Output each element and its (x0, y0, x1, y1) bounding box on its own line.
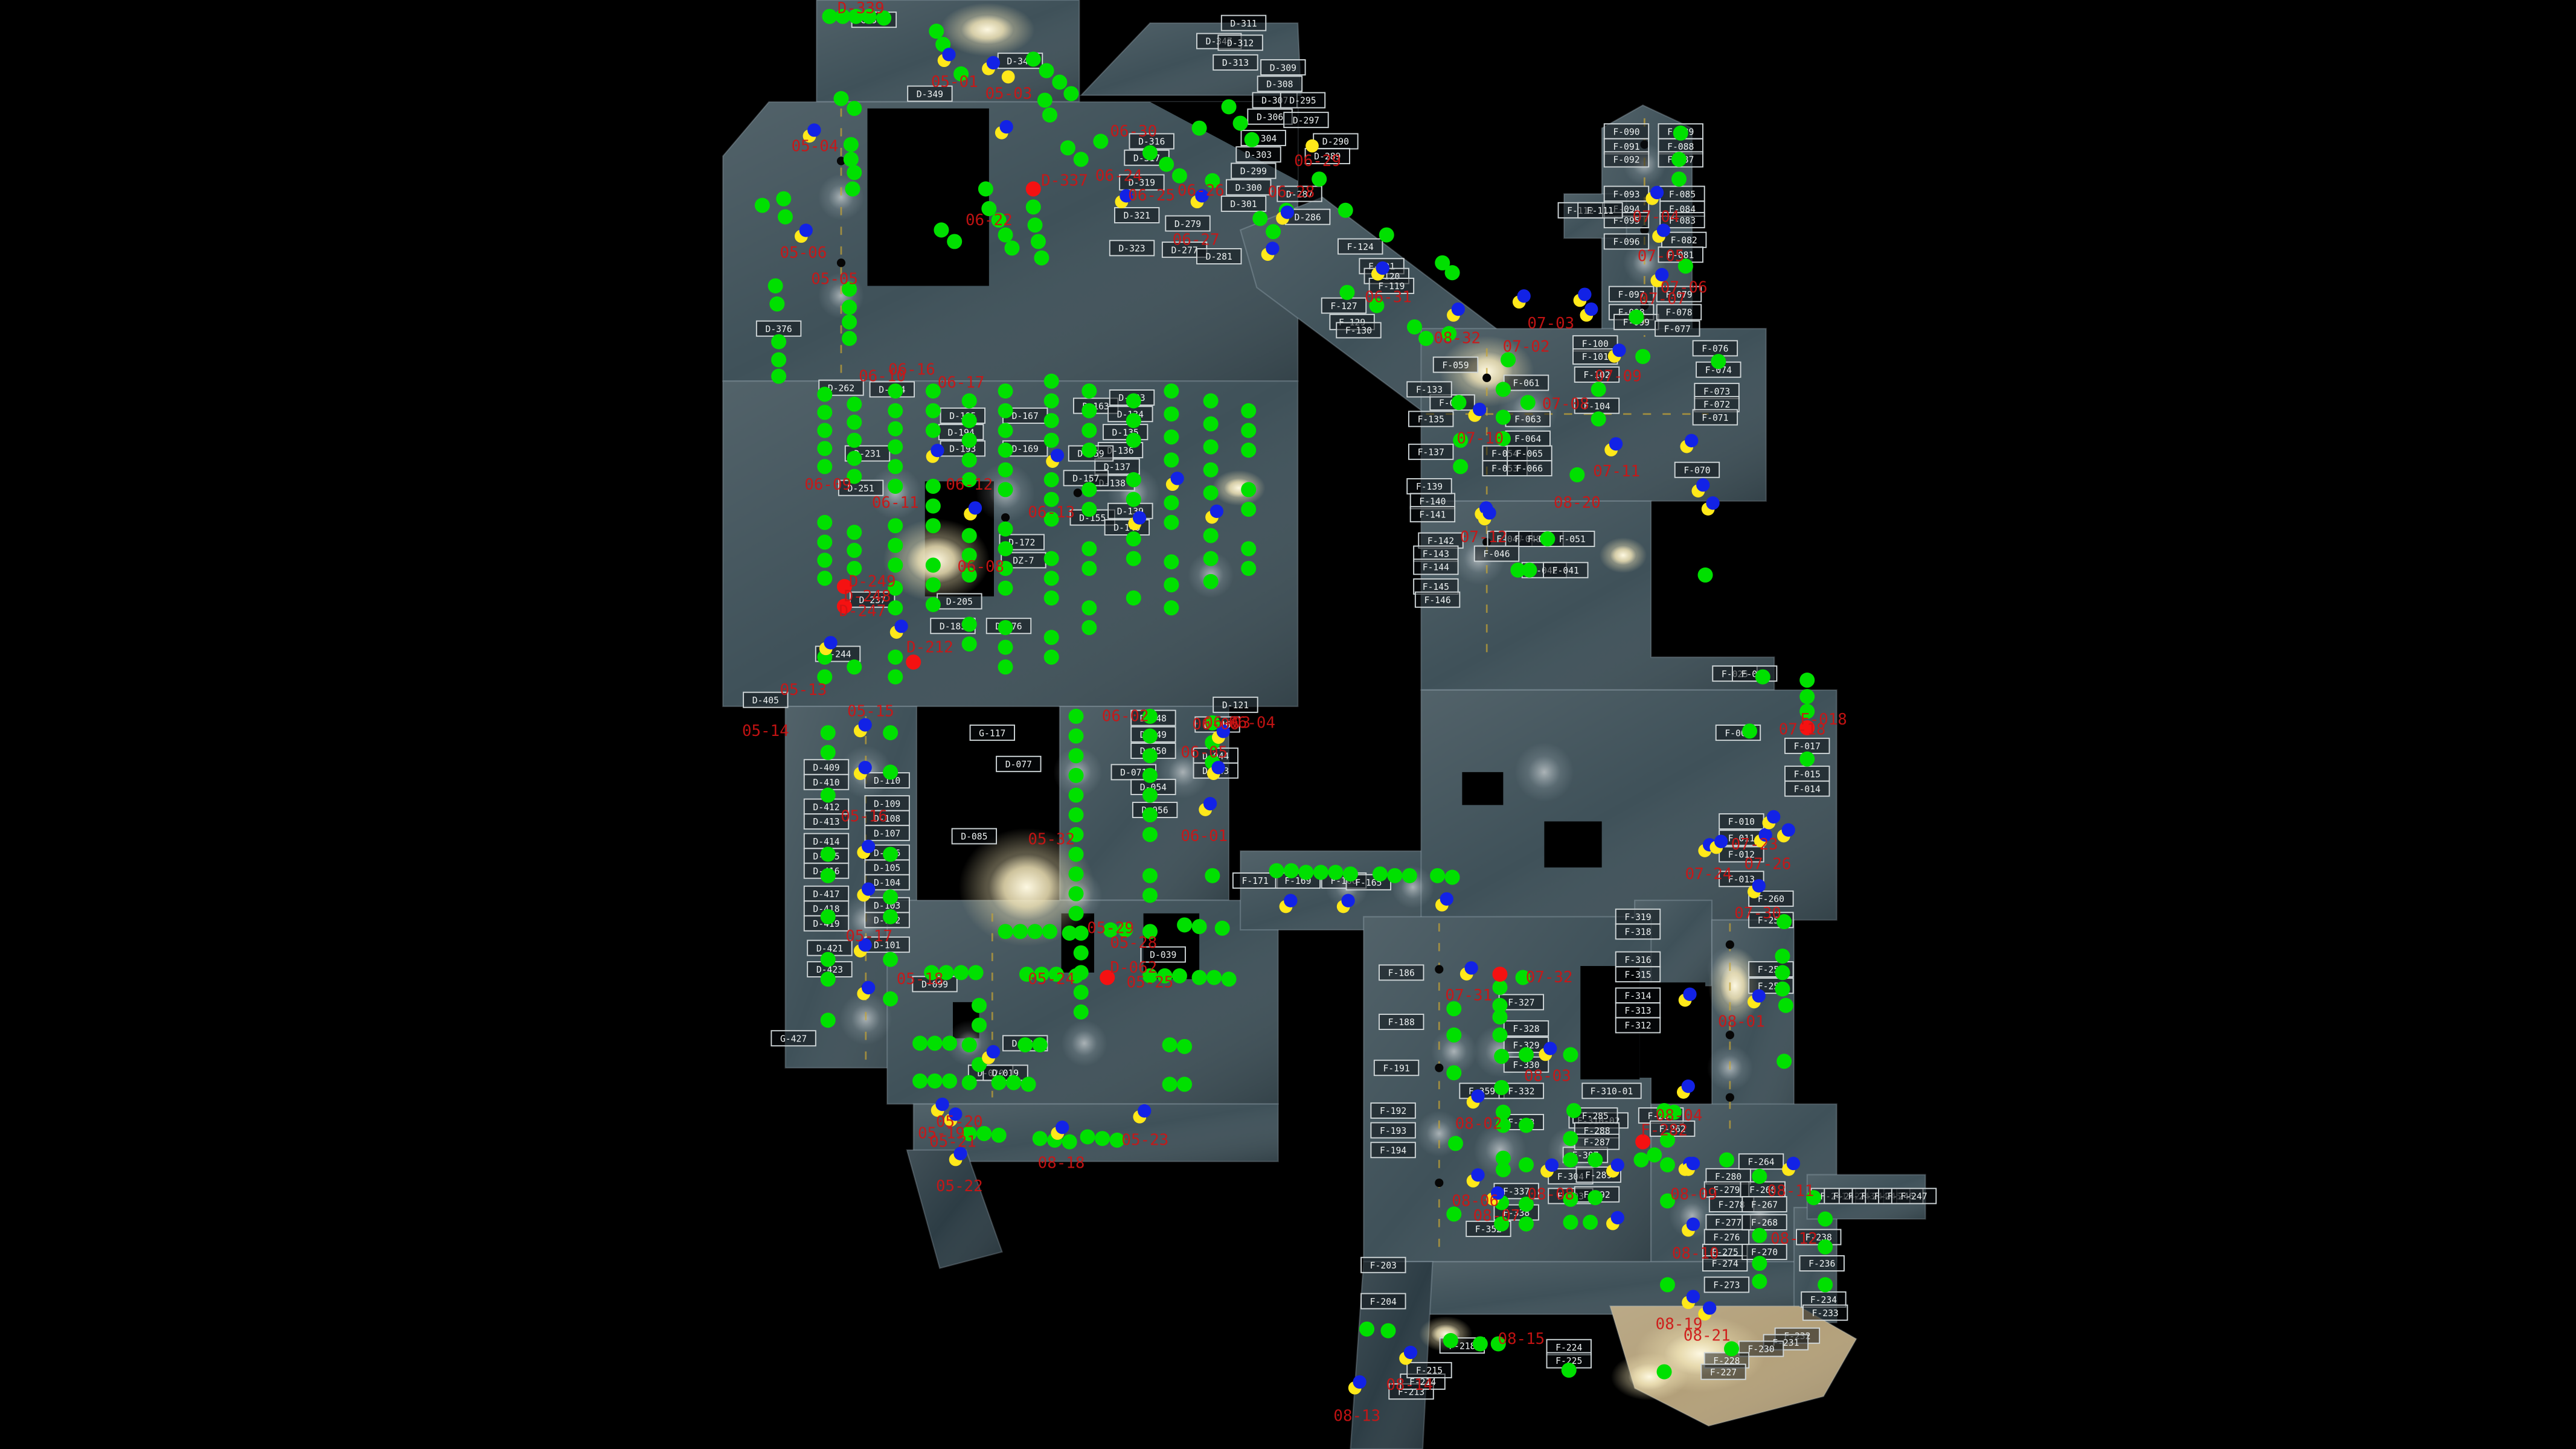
status-dot-green[interactable] (962, 636, 977, 651)
status-dot-green[interactable] (1799, 752, 1815, 767)
status-dot-green[interactable] (1081, 620, 1097, 635)
status-dot-green[interactable] (1818, 1239, 1833, 1255)
status-dot-green[interactable] (822, 9, 837, 24)
status-dot-green[interactable] (1192, 919, 1207, 934)
status-dot-green[interactable] (1203, 417, 1219, 432)
status-dot-green[interactable] (1004, 240, 1019, 255)
status-dot-green[interactable] (888, 518, 903, 533)
status-dot-green[interactable] (821, 909, 836, 924)
status-dot-green[interactable] (1093, 133, 1108, 149)
status-dot-green[interactable] (1164, 383, 1179, 398)
status-dot-green[interactable] (1044, 551, 1059, 566)
status-dot-green[interactable] (1711, 354, 1726, 369)
status-dot-green[interactable] (844, 152, 859, 167)
status-dot-green[interactable] (1446, 1028, 1461, 1043)
status-dot-blue[interactable] (1513, 289, 1531, 309)
status-dot-green[interactable] (1252, 211, 1267, 226)
status-dot-green[interactable] (1044, 650, 1059, 665)
status-dot-green[interactable] (771, 369, 786, 384)
status-dot-green[interactable] (1453, 459, 1468, 474)
status-dot-green[interactable] (1671, 152, 1687, 167)
status-dot-green[interactable] (1069, 846, 1084, 862)
status-dot-green[interactable] (1343, 866, 1358, 881)
status-dot-green[interactable] (929, 24, 944, 39)
status-dot-green[interactable] (1430, 868, 1445, 883)
status-dot-green[interactable] (1021, 1076, 1036, 1092)
status-dot-green[interactable] (1177, 917, 1192, 932)
status-dot-green[interactable] (842, 331, 857, 346)
status-dot-red[interactable] (1026, 181, 1041, 196)
status-dot-green[interactable] (992, 1075, 1007, 1090)
status-dot-green[interactable] (962, 413, 977, 428)
status-dot-green[interactable] (817, 552, 832, 568)
status-dot-green[interactable] (1142, 888, 1158, 903)
status-dot-green[interactable] (1245, 132, 1260, 147)
status-dot-green[interactable] (1164, 554, 1179, 569)
status-dot-green[interactable] (1818, 1212, 1833, 1227)
status-dot-green[interactable] (1473, 1336, 1488, 1351)
status-dot-green[interactable] (1126, 590, 1141, 606)
status-dot-green[interactable] (1742, 723, 1757, 738)
status-dot-green[interactable] (821, 868, 836, 883)
status-dot-green[interactable] (847, 525, 862, 540)
status-dot-green[interactable] (821, 745, 836, 760)
status-dot-green[interactable] (1818, 1277, 1833, 1292)
status-dot-green[interactable] (847, 415, 862, 430)
status-dot-green[interactable] (817, 515, 832, 530)
status-dot-green[interactable] (1588, 1153, 1603, 1168)
status-dot-green[interactable] (962, 1037, 977, 1052)
status-dot-green[interactable] (883, 846, 898, 862)
status-dot-green[interactable] (962, 1075, 977, 1090)
status-dot-green[interactable] (1162, 1076, 1177, 1092)
status-dot-green[interactable] (1044, 374, 1059, 389)
status-dot-green[interactable] (1241, 443, 1256, 458)
status-dot-green[interactable] (1069, 748, 1084, 763)
status-dot-green[interactable] (1755, 670, 1770, 685)
status-dot-green[interactable] (1074, 945, 1089, 961)
status-dot-yellow[interactable] (1306, 139, 1319, 153)
status-dot-green[interactable] (1569, 467, 1584, 482)
status-dot-green[interactable] (888, 403, 903, 418)
status-dot-green[interactable] (1069, 866, 1084, 881)
status-dot-green[interactable] (1081, 383, 1097, 398)
status-dot-green[interactable] (817, 459, 832, 474)
status-dot-green[interactable] (1591, 411, 1606, 426)
status-dot-green[interactable] (912, 1035, 928, 1051)
status-dot-green[interactable] (1492, 980, 1507, 995)
status-dot-green[interactable] (1164, 452, 1179, 467)
status-dot-green[interactable] (847, 165, 862, 180)
status-dot-green[interactable] (1496, 410, 1511, 425)
status-dot-green[interactable] (992, 1128, 1007, 1143)
status-dot-green[interactable] (1380, 1323, 1395, 1339)
status-dot-green[interactable] (1205, 868, 1220, 883)
status-dot-green[interactable] (1647, 1147, 1662, 1162)
status-dot-green[interactable] (1241, 403, 1256, 418)
status-dot-green[interactable] (776, 191, 791, 206)
status-dot-green[interactable] (1635, 349, 1650, 364)
status-dot-green[interactable] (1026, 51, 1041, 66)
status-dot-green[interactable] (768, 278, 783, 293)
status-dot-green[interactable] (1241, 423, 1256, 438)
status-dot-green[interactable] (1313, 865, 1328, 880)
status-dot-green[interactable] (998, 383, 1013, 398)
status-dot-green[interactable] (1081, 561, 1097, 576)
status-dot-green[interactable] (1494, 1080, 1509, 1095)
status-dot-green[interactable] (1063, 86, 1078, 101)
status-dot-green[interactable] (1540, 531, 1555, 546)
status-dot-green[interactable] (1660, 1157, 1675, 1172)
status-dot-green[interactable] (817, 423, 832, 438)
status-dot-green[interactable] (888, 479, 903, 494)
status-dot-green[interactable] (1402, 868, 1417, 883)
status-dot-green[interactable] (969, 965, 984, 980)
status-dot-green[interactable] (1407, 319, 1422, 334)
status-dot-green[interactable] (1060, 140, 1075, 155)
status-dot-green[interactable] (1164, 600, 1179, 615)
status-dot-green[interactable] (1142, 807, 1158, 822)
status-dot-green[interactable] (1028, 217, 1043, 232)
status-dot-green[interactable] (1494, 1049, 1509, 1064)
status-dot-green[interactable] (926, 597, 941, 612)
status-dot-green[interactable] (1520, 395, 1536, 410)
status-dot-green[interactable] (1522, 563, 1537, 578)
status-dot-green[interactable] (845, 181, 860, 196)
status-dot-green[interactable] (847, 397, 862, 412)
status-dot-green[interactable] (1081, 600, 1097, 615)
status-dot-green[interactable] (1269, 863, 1284, 878)
status-dot-green[interactable] (1203, 528, 1219, 543)
status-dot-green[interactable] (1177, 1039, 1192, 1054)
status-dot-green[interactable] (1142, 146, 1158, 161)
status-dot-green[interactable] (821, 971, 836, 987)
status-dot-green[interactable] (1177, 1076, 1192, 1092)
status-dot-green[interactable] (1443, 1333, 1458, 1348)
status-dot-green[interactable] (1069, 906, 1084, 921)
status-dot-green[interactable] (1142, 748, 1158, 763)
status-dot-green[interactable] (1162, 1037, 1177, 1052)
status-dot-green[interactable] (934, 222, 949, 237)
status-dot-green[interactable] (1752, 1256, 1767, 1271)
status-dot-green[interactable] (1069, 807, 1084, 822)
status-dot-green[interactable] (1126, 551, 1141, 566)
status-dot-green[interactable] (998, 659, 1013, 674)
status-dot-green[interactable] (1566, 1103, 1581, 1118)
status-dot-green[interactable] (1752, 1274, 1767, 1289)
status-dot-green[interactable] (953, 965, 969, 980)
status-dot-green[interactable] (1775, 982, 1790, 997)
status-dot-green[interactable] (998, 403, 1013, 418)
status-dot-green[interactable] (1660, 1277, 1675, 1292)
status-dot-green[interactable] (771, 334, 786, 349)
status-dot-green[interactable] (978, 181, 993, 196)
status-dot-green[interactable] (1164, 515, 1179, 530)
status-dot-green[interactable] (1037, 92, 1053, 107)
status-dot-green[interactable] (771, 352, 786, 367)
status-dot-green[interactable] (928, 1035, 943, 1051)
status-dot-green[interactable] (847, 659, 862, 674)
status-dot-green[interactable] (1192, 121, 1207, 136)
status-dot-green[interactable] (1777, 1054, 1792, 1069)
status-dot-green[interactable] (1069, 768, 1084, 783)
status-dot-green[interactable] (1203, 393, 1219, 408)
status-dot-green[interactable] (1241, 482, 1256, 497)
status-dot-green[interactable] (1673, 126, 1688, 141)
status-dot-green[interactable] (1448, 1136, 1463, 1151)
status-dot-green[interactable] (755, 198, 770, 213)
status-dot-green[interactable] (1080, 1129, 1095, 1144)
status-dot-green[interactable] (1633, 1153, 1648, 1168)
status-dot-green[interactable] (1044, 472, 1059, 487)
status-dot-green[interactable] (1222, 971, 1237, 987)
status-dot-green[interactable] (1081, 403, 1097, 418)
status-dot-green[interactable] (1359, 1322, 1374, 1337)
status-dot-green[interactable] (1126, 472, 1141, 487)
status-dot-green[interactable] (947, 234, 962, 249)
status-dot-green[interactable] (817, 441, 832, 456)
status-dot-green[interactable] (1215, 921, 1230, 936)
status-dot-green[interactable] (1142, 768, 1158, 783)
status-dot-green[interactable] (1033, 1131, 1048, 1146)
status-dot-green[interactable] (1519, 1217, 1534, 1232)
status-dot-green[interactable] (842, 299, 857, 315)
status-dot-green[interactable] (998, 522, 1013, 537)
status-dot-green[interactable] (1203, 440, 1219, 455)
status-dot-green[interactable] (888, 421, 903, 437)
status-dot-green[interactable] (1028, 924, 1043, 939)
status-dot-green[interactable] (888, 440, 903, 455)
status-dot-green[interactable] (1013, 924, 1028, 939)
status-dot-yellow[interactable] (1002, 70, 1015, 83)
status-dot-green[interactable] (1203, 462, 1219, 478)
status-dot-green[interactable] (821, 725, 836, 740)
status-dot-green[interactable] (1203, 551, 1219, 566)
status-dot-green[interactable] (1081, 541, 1097, 556)
status-dot-green[interactable] (1799, 689, 1815, 704)
status-dot-green[interactable] (1081, 502, 1097, 517)
status-dot-green[interactable] (962, 393, 977, 408)
status-dot-green[interactable] (998, 443, 1013, 458)
status-dot-green[interactable] (1069, 709, 1084, 724)
status-dot-green[interactable] (1033, 1037, 1048, 1052)
status-dot-green[interactable] (888, 670, 903, 685)
status-dot-green[interactable] (888, 383, 903, 398)
status-dot-green[interactable] (1629, 310, 1644, 325)
status-dot-green[interactable] (847, 451, 862, 466)
status-dot-green[interactable] (942, 1073, 957, 1089)
status-dot-green[interactable] (1588, 1190, 1603, 1205)
status-dot-green[interactable] (769, 296, 784, 312)
status-dot-green[interactable] (1284, 863, 1299, 878)
status-dot-green[interactable] (1206, 970, 1222, 985)
status-dot-green[interactable] (972, 998, 987, 1013)
status-dot-green[interactable] (1799, 673, 1815, 688)
status-dot-green[interactable] (926, 558, 941, 573)
status-dot-green[interactable] (1074, 985, 1089, 1000)
status-dot-green[interactable] (833, 91, 848, 106)
status-dot-green[interactable] (1081, 423, 1097, 438)
status-dot-green[interactable] (998, 581, 1013, 596)
status-dot-green[interactable] (1496, 1162, 1511, 1177)
status-dot-green[interactable] (817, 534, 832, 549)
status-dot-green[interactable] (1451, 395, 1466, 410)
status-dot-green[interactable] (888, 459, 903, 474)
status-dot-green[interactable] (1519, 1118, 1534, 1133)
status-dot-green[interactable] (842, 315, 857, 330)
status-dot-green[interactable] (847, 543, 862, 558)
status-dot-green[interactable] (926, 423, 941, 438)
status-dot-green[interactable] (821, 1012, 836, 1028)
status-dot-green[interactable] (821, 952, 836, 967)
status-dot-blue[interactable] (1677, 1080, 1695, 1099)
status-dot-green[interactable] (998, 482, 1013, 497)
status-dot-green[interactable] (1752, 1228, 1767, 1243)
status-dot-green[interactable] (926, 499, 941, 514)
status-dot-green[interactable] (1164, 429, 1179, 444)
status-dot-green[interactable] (847, 101, 862, 116)
status-dot-green[interactable] (1081, 482, 1097, 497)
status-dot-green[interactable] (962, 433, 977, 448)
status-dot-green[interactable] (883, 952, 898, 967)
status-dot-green[interactable] (1338, 203, 1353, 218)
status-dot-green[interactable] (883, 909, 898, 924)
status-dot-green[interactable] (926, 518, 941, 533)
status-dot-green[interactable] (1775, 965, 1790, 980)
status-dot-green[interactable] (1233, 116, 1248, 131)
status-dot-green[interactable] (1192, 970, 1207, 985)
status-dot-green[interactable] (1044, 571, 1059, 586)
status-dot-red[interactable] (1492, 967, 1507, 982)
status-dot-green[interactable] (1563, 1215, 1578, 1230)
status-dot-green[interactable] (1006, 1075, 1021, 1090)
status-dot-green[interactable] (1778, 998, 1793, 1013)
status-dot-green[interactable] (1044, 433, 1059, 448)
status-dot-green[interactable] (1519, 1157, 1534, 1172)
status-dot-green[interactable] (1562, 1363, 1577, 1378)
status-dot-green[interactable] (962, 528, 977, 543)
status-dot-green[interactable] (821, 787, 836, 802)
status-dot-green[interactable] (1387, 868, 1402, 883)
status-dot-green[interactable] (1034, 251, 1049, 266)
status-dot-green[interactable] (888, 538, 903, 553)
status-dot-green[interactable] (1062, 926, 1077, 941)
status-dot-green[interactable] (883, 991, 898, 1006)
status-dot-green[interactable] (1328, 865, 1343, 880)
status-dot-green[interactable] (1062, 1134, 1077, 1150)
status-dot-green[interactable] (1379, 228, 1394, 243)
status-dot-green[interactable] (1126, 492, 1141, 507)
status-dot-green[interactable] (1126, 393, 1141, 408)
status-dot-green[interactable] (962, 616, 977, 632)
status-dot-green[interactable] (1519, 1047, 1534, 1062)
status-dot-green[interactable] (1069, 886, 1084, 901)
status-dot-green[interactable] (1775, 948, 1790, 964)
status-dot-green[interactable] (1126, 433, 1141, 448)
status-dot-green[interactable] (1039, 63, 1054, 78)
status-dot-green[interactable] (1081, 443, 1097, 458)
status-dot-green[interactable] (1159, 157, 1174, 172)
status-dot-green[interactable] (1671, 171, 1687, 187)
status-dot-green[interactable] (998, 640, 1013, 655)
status-dot-green[interactable] (1418, 331, 1434, 346)
status-dot-green[interactable] (1095, 1131, 1110, 1146)
status-dot-green[interactable] (1698, 568, 1713, 583)
status-dot-green[interactable] (998, 541, 1013, 556)
status-dot-green[interactable] (883, 725, 898, 740)
status-dot-green[interactable] (1017, 1037, 1033, 1052)
status-dot-green[interactable] (1492, 1028, 1507, 1043)
status-dot-green[interactable] (1142, 827, 1158, 842)
status-dot-green[interactable] (1241, 541, 1256, 556)
status-dot-green[interactable] (1583, 1215, 1598, 1230)
status-dot-green[interactable] (883, 889, 898, 904)
status-dot-green[interactable] (1563, 1131, 1578, 1146)
status-dot-green[interactable] (1657, 1364, 1672, 1380)
status-dot-green[interactable] (888, 558, 903, 573)
status-dot-green[interactable] (1042, 107, 1057, 123)
status-dot-green[interactable] (1445, 870, 1460, 885)
status-dot-green[interactable] (1719, 1153, 1734, 1168)
status-dot-green[interactable] (1044, 393, 1059, 408)
status-dot-green[interactable] (844, 137, 859, 152)
status-dot-green[interactable] (1222, 99, 1237, 114)
status-dot-green[interactable] (821, 846, 836, 862)
status-dot-green[interactable] (1074, 1005, 1089, 1020)
status-dot-green[interactable] (1042, 924, 1057, 939)
status-dot-green[interactable] (1446, 1065, 1461, 1080)
status-dot-green[interactable] (1164, 577, 1179, 592)
status-dot-green[interactable] (1373, 866, 1388, 881)
status-dot-green[interactable] (1026, 199, 1041, 214)
status-dot-green[interactable] (1044, 590, 1059, 606)
status-dot-green[interactable] (1069, 729, 1084, 744)
status-dot-green[interactable] (998, 620, 1013, 635)
status-dot-green[interactable] (1203, 485, 1219, 501)
status-dot-green[interactable] (1044, 630, 1059, 645)
status-dot-green[interactable] (1172, 968, 1187, 984)
status-dot-green[interactable] (1164, 495, 1179, 510)
status-dot-green[interactable] (1496, 382, 1511, 397)
status-dot-green[interactable] (926, 479, 941, 494)
status-dot-green[interactable] (883, 764, 898, 779)
status-dot-green[interactable] (1142, 868, 1158, 883)
status-dot-green[interactable] (1445, 265, 1460, 280)
status-dot-green[interactable] (926, 403, 941, 418)
status-dot-green[interactable] (1069, 787, 1084, 802)
status-dot-green[interactable] (1298, 865, 1313, 880)
status-dot-green[interactable] (1126, 413, 1141, 428)
status-dot-green[interactable] (1142, 787, 1158, 802)
status-dot-green[interactable] (926, 577, 941, 592)
status-dot-green[interactable] (1266, 224, 1281, 239)
status-dot-green[interactable] (1752, 1169, 1767, 1184)
status-dot-green[interactable] (912, 1073, 928, 1089)
status-dot-green[interactable] (1142, 729, 1158, 744)
status-dot-green[interactable] (962, 452, 977, 467)
status-dot-green[interactable] (817, 405, 832, 420)
status-dot-green[interactable] (998, 924, 1013, 939)
status-dot-green[interactable] (817, 571, 832, 586)
status-dot-green[interactable] (1563, 1153, 1578, 1168)
status-dot-green[interactable] (1339, 285, 1354, 300)
status-dot-green[interactable] (1492, 1009, 1507, 1025)
status-dot-green[interactable] (847, 433, 862, 448)
status-dot-green[interactable] (1126, 531, 1141, 546)
status-dot-green[interactable] (1044, 413, 1059, 428)
status-dot-green[interactable] (888, 650, 903, 665)
status-dot-green[interactable] (778, 210, 793, 225)
